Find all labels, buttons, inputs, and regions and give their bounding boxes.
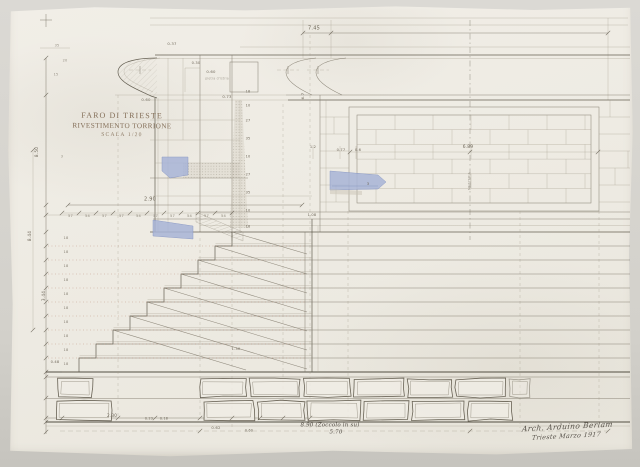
dimension-label: 0.73 bbox=[222, 95, 231, 99]
dimension-label: 18 bbox=[64, 293, 69, 297]
dimension-label: 10 bbox=[246, 209, 251, 213]
dimension-label: pietra d'istria bbox=[205, 77, 229, 80]
dimension-label: 18 bbox=[246, 90, 251, 94]
dimension-label: 57 bbox=[153, 215, 158, 219]
dimension-label: 18 bbox=[64, 307, 69, 311]
dimension-label: 2.90 bbox=[144, 198, 156, 203]
dimension-label: 57 bbox=[170, 215, 175, 219]
dimension-label: 54 bbox=[221, 215, 226, 219]
dimension-label: 18 bbox=[64, 237, 69, 241]
dimension-label: 18 bbox=[64, 335, 69, 339]
dimension-label: 0.18 bbox=[160, 417, 168, 420]
dimension-label: 0.23 bbox=[145, 417, 153, 420]
dimension-label: 6.89 bbox=[463, 146, 474, 150]
dimension-label: 8.90 (Zoccolo in su) bbox=[300, 423, 359, 429]
drawing-sheet-photo: FARO DI TRIESTE RIVESTIMENTO TORRIONE SC… bbox=[0, 0, 640, 467]
dimension-label: 1.2 bbox=[310, 146, 316, 150]
dimension-label: 10 bbox=[246, 104, 251, 108]
dimension-label: 1.08 bbox=[308, 214, 317, 218]
dimension-label: 1.30 bbox=[232, 348, 241, 352]
dimension-label: 35 bbox=[55, 44, 60, 48]
dimension-label: 2.30 bbox=[107, 414, 117, 418]
dimension-label: 6.7 bbox=[301, 93, 305, 100]
dimension-label: 15 bbox=[54, 73, 59, 77]
dimension-label: 20 bbox=[63, 59, 68, 63]
dimension-label: 0.62 bbox=[211, 426, 220, 430]
dimension-label: 0.60 bbox=[206, 70, 215, 74]
dimension-label: 57 bbox=[204, 215, 209, 219]
dimension-label: 3.44 bbox=[42, 291, 46, 301]
dimension-annotations: 7.452.900.370.300.60pietra d'istria0.730… bbox=[0, 0, 640, 467]
dimension-label: 18 bbox=[246, 225, 251, 229]
dimension-label: 0.6 bbox=[355, 149, 361, 153]
dimension-label: 0.37 bbox=[167, 42, 176, 46]
dimension-label: 27 bbox=[246, 119, 251, 123]
dimension-label: 3 bbox=[367, 182, 370, 186]
dimension-label: 18 bbox=[64, 265, 69, 269]
dimension-label: 7.45 bbox=[308, 27, 320, 32]
dimension-label: 0.77 bbox=[337, 149, 346, 153]
dimension-label: 3 bbox=[61, 155, 63, 159]
dimension-label: 0.60 bbox=[245, 429, 253, 432]
dimension-label: 10 bbox=[246, 155, 251, 159]
dimension-label: 54 bbox=[187, 215, 192, 219]
dimension-label: 18 bbox=[64, 321, 69, 325]
dimension-label: 18 bbox=[64, 251, 69, 255]
dimension-label: 54 bbox=[85, 215, 90, 219]
dimension-label: 57 bbox=[119, 215, 124, 219]
dimension-label: 57 bbox=[68, 215, 73, 219]
dimension-label: MEZZERIA bbox=[468, 172, 471, 190]
dimension-label: 18 bbox=[64, 279, 69, 283]
dimension-label: 0.30 bbox=[192, 62, 201, 66]
dimension-label: 35 bbox=[246, 137, 251, 141]
dimension-label: 0.60 bbox=[141, 98, 150, 102]
dimension-label: 18 bbox=[64, 349, 69, 353]
dimension-label: 54 bbox=[136, 215, 141, 219]
dimension-label: 18 bbox=[64, 363, 69, 367]
dimension-label: 5.70 bbox=[329, 430, 342, 436]
dimension-label: 35 bbox=[246, 191, 251, 195]
dimension-label: 27 bbox=[246, 173, 251, 177]
dimension-label: 0.48 bbox=[51, 361, 60, 365]
dimension-label: 8.50 bbox=[35, 147, 39, 157]
dimension-label: 8.44 bbox=[28, 231, 32, 241]
dimension-label: 57 bbox=[102, 215, 107, 219]
